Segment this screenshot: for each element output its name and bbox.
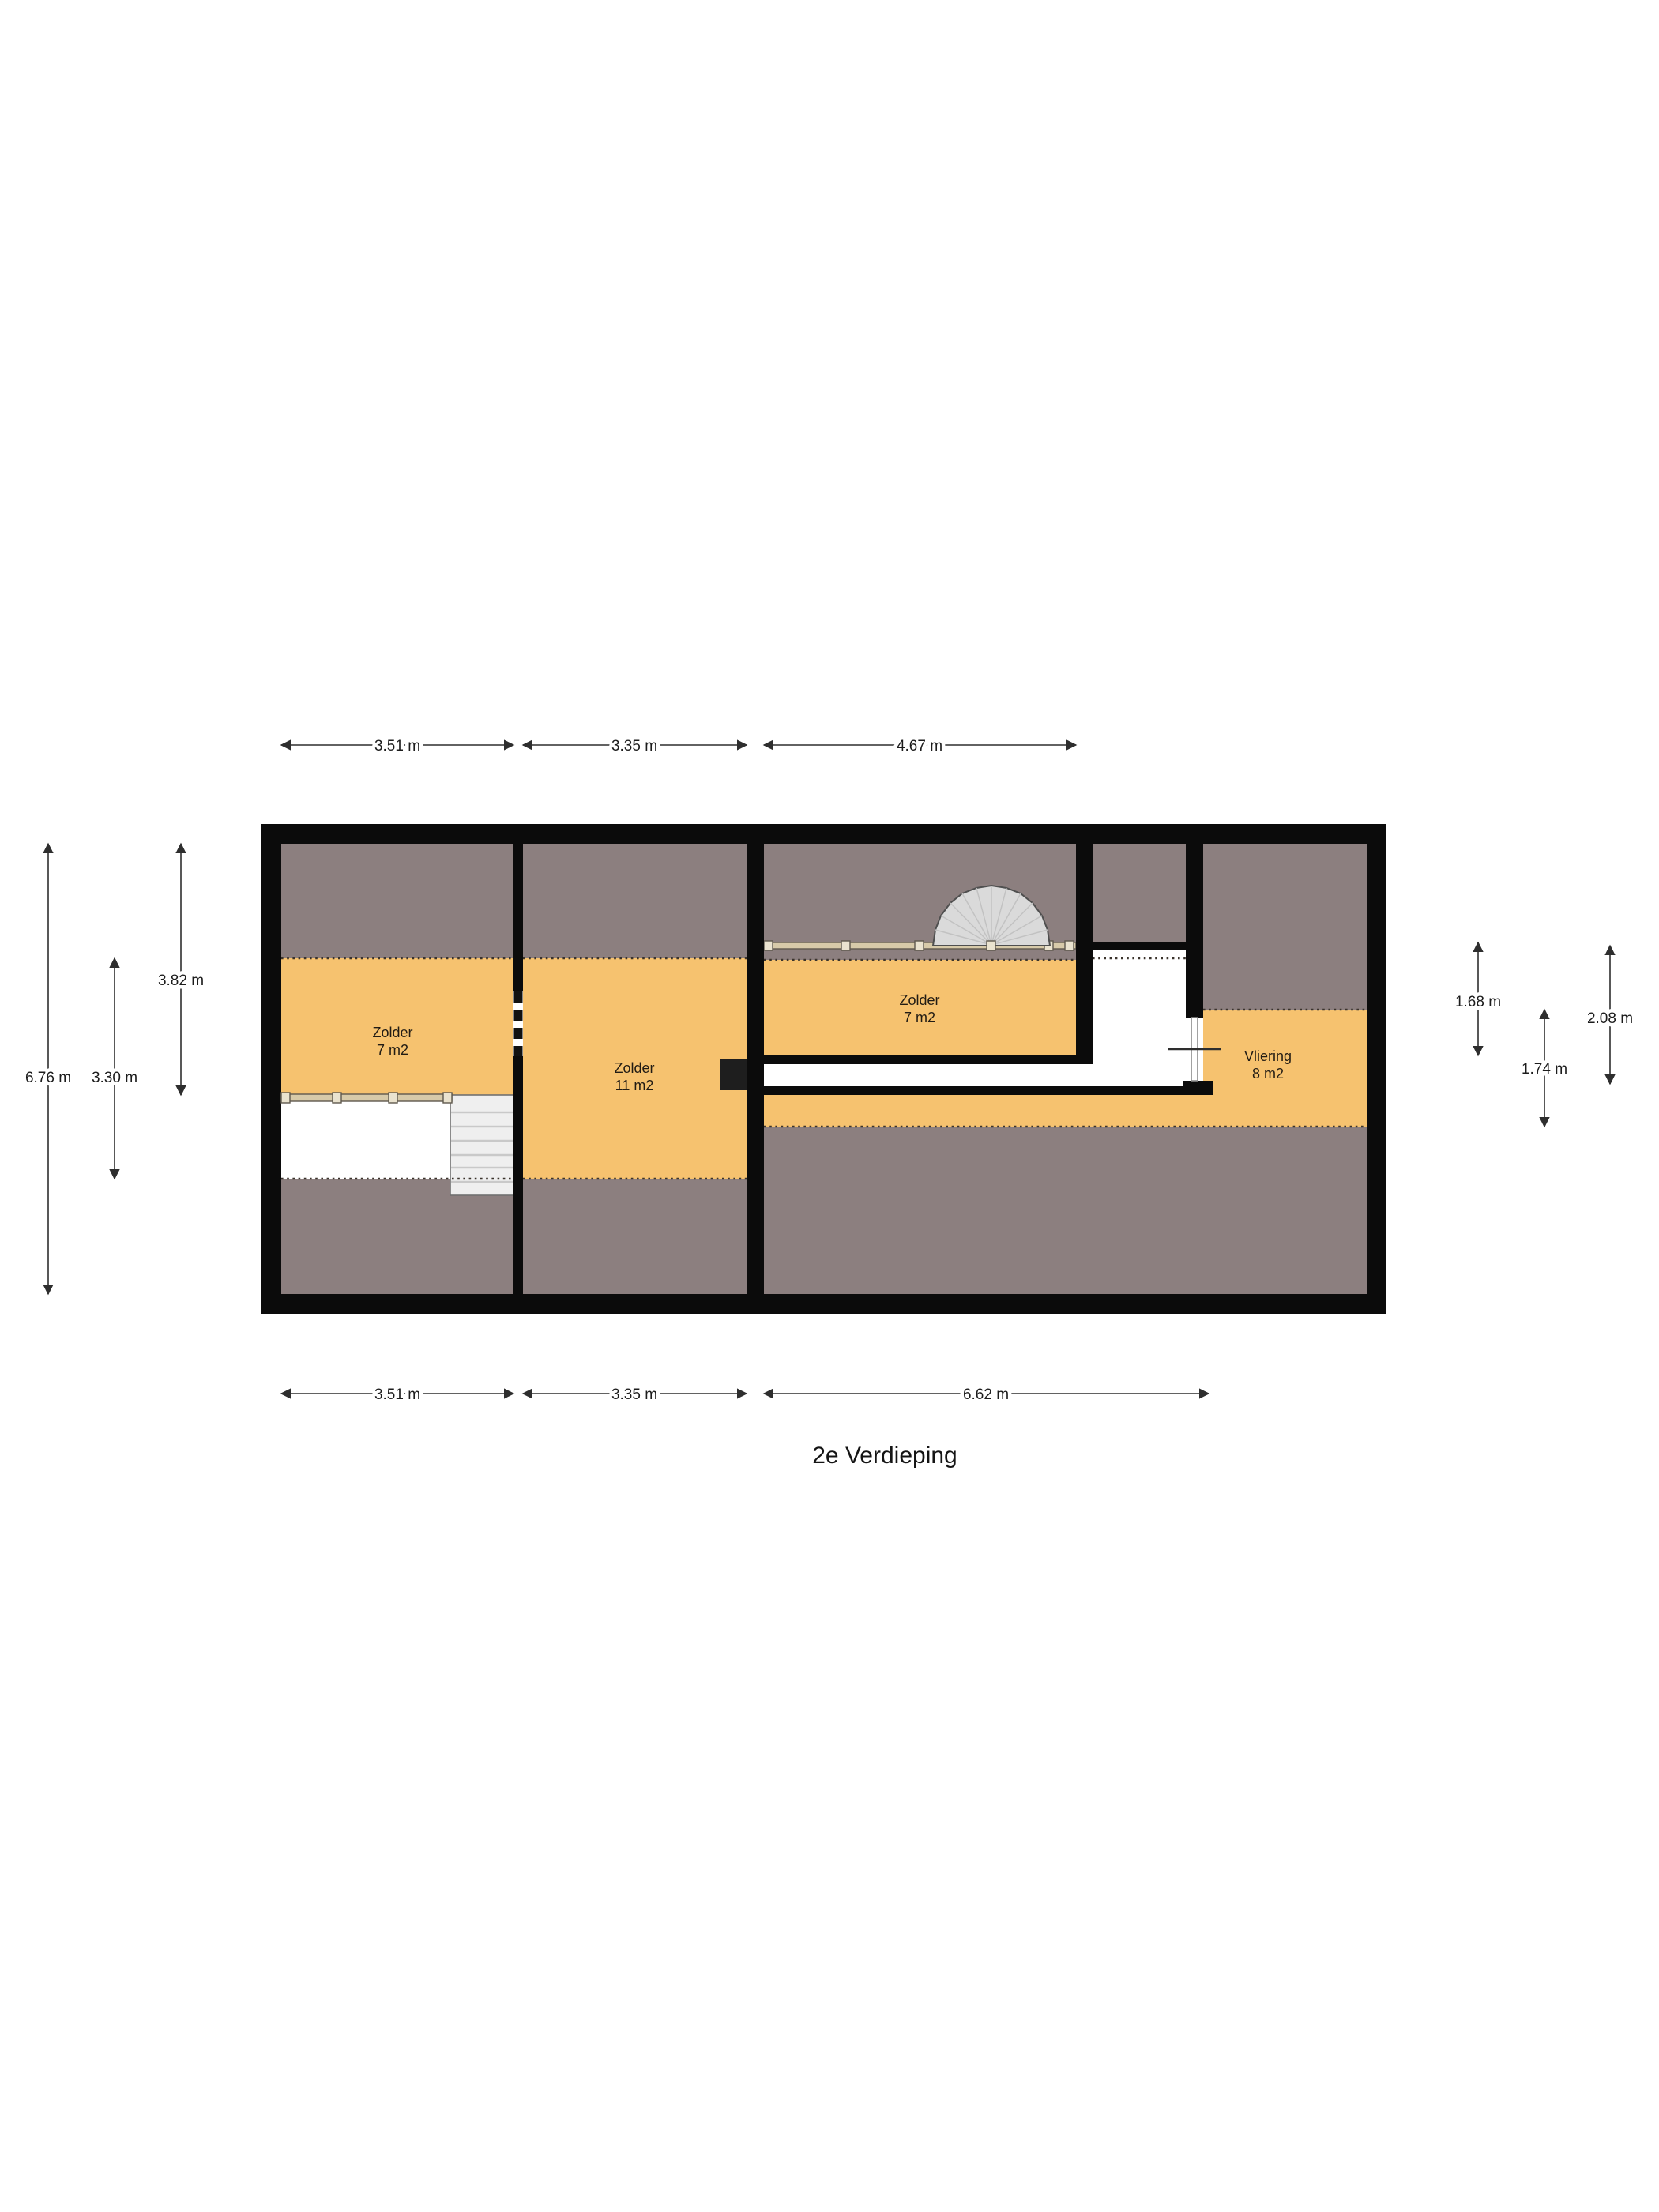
dimension-top-3: 4.67 m [764,738,1076,754]
dimension-left-2-label: 3.30 m [92,1070,137,1086]
dimension-bottom-2-label: 3.35 m [611,1386,657,1403]
room-label-zolder-2-area: 11 m2 [615,1078,654,1093]
room-label-zolder-2-name: Zolder [614,1060,654,1076]
corridor-bottom-wall [764,1086,1213,1095]
page-title: 2e Verdieping [812,1443,957,1469]
dimension-left-1: 6.76 m [25,844,71,1294]
dimension-bottom-1-label: 3.51 m [374,1386,420,1403]
roof-slope-bottom-right [764,1127,1367,1294]
stairwell-void-right [1093,950,1186,1086]
dimension-left-2: 3.30 m [92,958,137,1179]
room-label-zolder-1-name: Zolder [372,1025,412,1040]
passage-wall1 [513,991,523,1056]
door-stub-wall [1183,1081,1213,1095]
room-label-zolder-3-area: 7 m2 [904,1010,935,1025]
roof-slope-right-top [1203,844,1367,1010]
roof-slope-room1-top [281,844,513,958]
roof-slope-room2-top [523,844,747,958]
dimension-top-1-label: 3.51 m [374,738,420,754]
dimension-top-1: 3.51 m [281,738,513,754]
wall-4 [1186,844,1203,1018]
room-label-zolder-1-area: 7 m2 [377,1042,408,1058]
dimension-bottom-3-label: 6.62 m [963,1386,1009,1403]
room-label-zolder-3-name: Zolder [899,992,939,1008]
dimension-right-3: 1.74 m [1522,1010,1567,1127]
dimension-top-3-label: 4.67 m [897,738,942,754]
room-vliering-strip [764,1095,1367,1127]
dimension-right-3-label: 1.74 m [1522,1061,1567,1078]
roof-slope-closet [1093,844,1186,942]
dimension-left-3-label: 3.82 m [158,972,204,989]
straight-staircase [450,1095,513,1195]
dimension-left-3: 3.82 m [158,844,204,1095]
dimension-bottom-2: 3.35 m [523,1386,747,1403]
dimension-top-2: 3.35 m [523,738,747,754]
room-label-vliering-name: Vliering [1244,1048,1292,1064]
closet-bottom-wall [1093,942,1186,950]
railing-post-center [987,941,995,950]
wall-3 [1076,844,1093,1064]
floor-plan: Zolder 7 m2 Zolder 11 m2 Zolder 7 m2 Vli… [0,0,1659,2212]
dimension-right-2-label: 2.08 m [1587,1010,1633,1027]
plan-body [261,824,1386,1314]
room-label-vliering-area: 8 m2 [1252,1066,1284,1082]
room3-bottom-wall [764,1055,1093,1064]
chimney [720,1059,747,1090]
wall-1 [513,844,523,1294]
roof-slope-room1-bottom [281,1179,513,1294]
dimension-right-1-label: 1.68 m [1455,994,1501,1010]
dimension-bottom-3: 6.62 m [764,1386,1209,1403]
dimension-top-2-label: 3.35 m [611,738,657,754]
railing-left [281,1093,452,1103]
roof-slope-room2-bottom [523,1179,747,1294]
dimension-left-1-label: 6.76 m [25,1070,71,1086]
wall-2 [747,844,764,1294]
dimension-right-2: 2.08 m [1587,946,1633,1084]
dimension-bottom-1: 3.51 m [281,1386,513,1403]
dimension-right-1: 1.68 m [1455,942,1501,1055]
